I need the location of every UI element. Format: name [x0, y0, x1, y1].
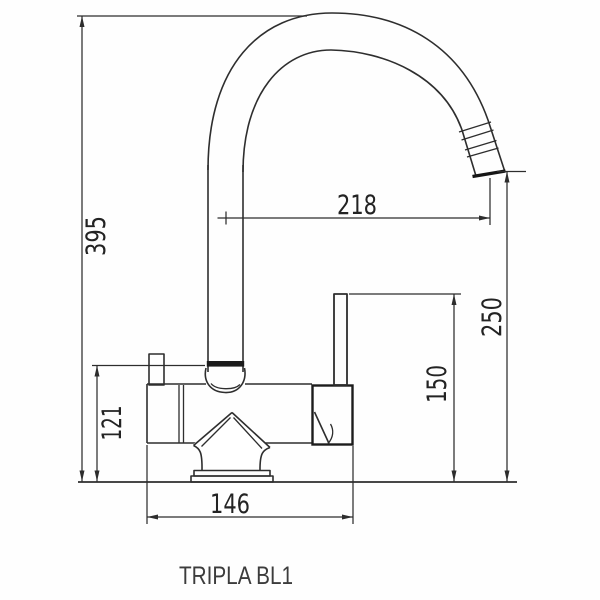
base-cone: [191, 412, 273, 482]
dimension-218: 218: [218, 178, 491, 225]
dim-value-146: 146: [210, 489, 250, 520]
handle-lever: [334, 294, 347, 385]
drawing-canvas: 395 121 218 250 150 146: [0, 0, 600, 600]
faucet-dimension-drawing: 395 121 218 250 150 146: [0, 0, 600, 600]
dimension-150: 150: [349, 294, 461, 482]
cone-mask: [191, 412, 271, 470]
dim-value-121: 121: [97, 406, 128, 441]
dim-value-150: 150: [422, 365, 453, 403]
column-joint-band: [207, 361, 244, 367]
dim-value-250: 250: [477, 297, 508, 337]
faucet-outline: [78, 13, 517, 482]
aerator-ring-line: [459, 122, 491, 132]
stem-right-side: [260, 448, 270, 471]
spout-outer-curve: [208, 13, 505, 172]
valve-curve-line: [328, 424, 333, 444]
left-valve-knob: [149, 354, 164, 385]
faucet-body: [147, 294, 353, 445]
dim-value-395: 395: [81, 216, 112, 256]
aerator-ring-line: [462, 130, 494, 140]
aerator: [459, 122, 506, 177]
product-title: TRIPLA BL1: [179, 562, 293, 590]
plinth-lower-step: [191, 476, 273, 482]
spout-column: [205, 165, 245, 393]
aerator-ring-line: [467, 148, 499, 157]
aerator-ring-line: [465, 141, 497, 151]
dim-value-218: 218: [337, 190, 377, 221]
spout-arc: [208, 13, 505, 176]
spout-inner-curve: [243, 50, 476, 176]
column-collar-inner: [211, 384, 240, 389]
plinth-upper-step: [194, 471, 270, 477]
valve-diagonal-line: [315, 412, 330, 444]
